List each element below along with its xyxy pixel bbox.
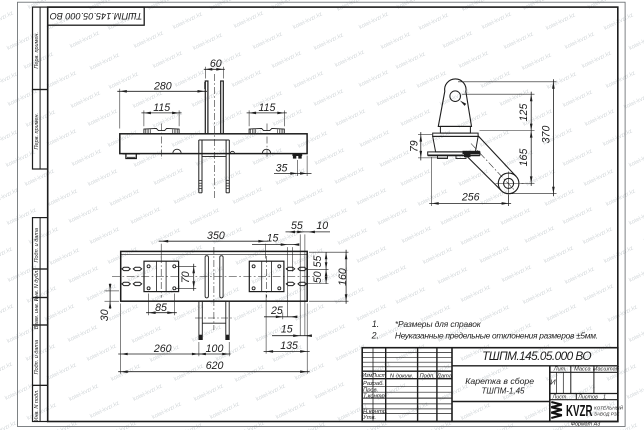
svg-text:70: 70 (180, 271, 192, 283)
svg-text:Лист: Лист (371, 373, 386, 379)
svg-text:370: 370 (541, 126, 553, 144)
svg-text:1.: 1. (372, 319, 379, 329)
svg-text:25: 25 (270, 305, 283, 317)
svg-text:Подп. и дата: Подп. и дата (34, 340, 40, 374)
svg-text:Листов: Листов (577, 395, 598, 401)
svg-text:Изм: Изм (362, 373, 372, 379)
svg-text:Подп.: Подп. (419, 373, 434, 379)
svg-text:*Размеры для справок: *Размеры для справок (395, 319, 482, 329)
svg-text:KVZR: KVZR (566, 403, 593, 420)
svg-text:ЗАВОД РЗК: ЗАВОД РЗК (594, 412, 620, 417)
svg-text:15: 15 (281, 324, 293, 336)
svg-text:ТШПМ.145.05.000 ВО: ТШПМ.145.05.000 ВО (482, 349, 591, 363)
svg-text:Разраб.: Разраб. (363, 381, 384, 387)
svg-text:ТШПМ.145.05.000 ВО: ТШПМ.145.05.000 ВО (50, 11, 143, 21)
svg-text:125: 125 (518, 104, 530, 122)
svg-text:Масса: Масса (574, 367, 591, 373)
svg-text:115: 115 (259, 102, 276, 114)
svg-text:55: 55 (291, 220, 303, 232)
svg-text:280: 280 (153, 80, 172, 92)
svg-text:Дата: Дата (436, 373, 453, 379)
svg-text:79: 79 (408, 140, 420, 152)
svg-text:10: 10 (316, 220, 328, 232)
svg-text:Лит.: Лит. (553, 367, 567, 373)
svg-text:Масштаб: Масштаб (593, 367, 620, 373)
svg-text:КОТЕЛЬНЫЙ: КОТЕЛЬНЫЙ (594, 404, 624, 411)
svg-text:2.: 2. (371, 331, 379, 341)
svg-text:Инв. N подл.: Инв. N подл. (34, 389, 40, 421)
svg-text:135: 135 (280, 340, 298, 352)
svg-text:30: 30 (99, 309, 111, 321)
svg-text:60: 60 (210, 58, 222, 70)
svg-text:55: 55 (312, 256, 324, 268)
svg-text:50: 50 (312, 271, 324, 283)
svg-text:260: 260 (153, 343, 172, 355)
svg-text:160: 160 (337, 268, 349, 286)
svg-text:И: И (550, 378, 556, 387)
svg-text:Лист: Лист (552, 395, 567, 401)
svg-text:ТШПМ-1,45: ТШПМ-1,45 (482, 387, 525, 396)
svg-text:Неуказанные предельные отклоне: Неуказанные предельные отклонения размер… (395, 331, 598, 341)
svg-text:Формат А3: Формат А3 (571, 421, 601, 427)
svg-text:1: 1 (603, 395, 606, 401)
svg-text:620: 620 (206, 360, 224, 372)
svg-text:N докум.: N докум. (390, 373, 413, 379)
svg-text:115: 115 (153, 102, 170, 114)
svg-text:Инв. N дубл.: Инв. N дубл. (34, 269, 40, 301)
svg-text:Утв.: Утв. (362, 415, 376, 421)
svg-text:15: 15 (267, 233, 279, 245)
svg-text:Подп. и дата: Подп. и дата (34, 228, 40, 262)
svg-text:Перв. примен.: Перв. примен. (34, 32, 40, 69)
svg-text:35: 35 (276, 162, 288, 174)
svg-text:350: 350 (207, 230, 225, 242)
svg-text:Т.контр.: Т.контр. (363, 393, 386, 399)
svg-text:256: 256 (461, 192, 480, 204)
svg-text:Перв. примен.: Перв. примен. (34, 113, 40, 150)
svg-text:165: 165 (518, 149, 530, 167)
svg-text:85: 85 (155, 302, 167, 314)
svg-text:Каретка в сборе: Каретка в сборе (465, 376, 534, 386)
svg-text:100: 100 (206, 343, 224, 355)
